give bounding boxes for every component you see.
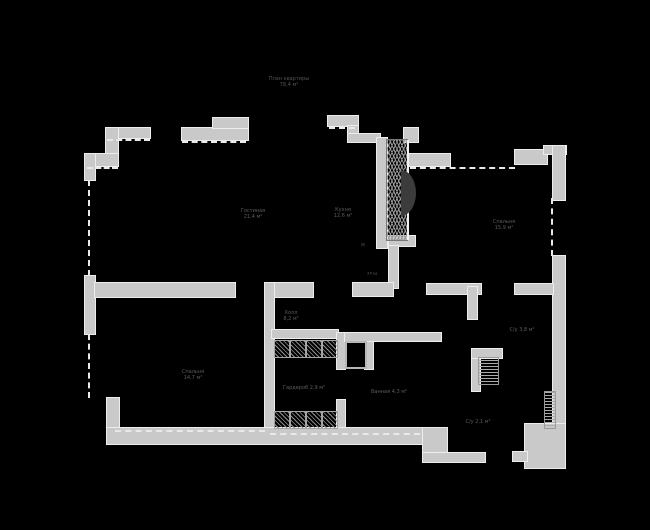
room-name: Ванная xyxy=(371,389,390,395)
room-label-storage: С/у 2,1 м² xyxy=(465,419,490,425)
room-label-bathroom: Ванная 4,3 м² xyxy=(371,389,407,395)
wall xyxy=(182,128,248,140)
room-label-bedroom-top: Спальня 15,9 м² xyxy=(493,219,515,232)
plan-title: План квартиры 78,4 м² xyxy=(269,76,309,89)
washing-machine xyxy=(479,358,498,384)
wall xyxy=(328,116,358,126)
shelf xyxy=(275,412,289,428)
wall xyxy=(468,287,477,319)
annotation-text: эл.щ xyxy=(367,271,377,276)
wall xyxy=(515,150,547,164)
duct-box xyxy=(345,341,367,369)
wall xyxy=(353,283,393,296)
wall xyxy=(513,452,527,461)
door-swing xyxy=(401,170,416,216)
shelf xyxy=(291,341,305,357)
room-name: Гардероб xyxy=(283,385,308,391)
room-name: С/у xyxy=(465,419,473,425)
room-label-hall: Холл 8,2 м² xyxy=(283,310,298,323)
window xyxy=(107,139,150,141)
room-name: С/у xyxy=(509,327,517,333)
room-label-living: Гостиная 21,4 м² xyxy=(241,208,265,221)
window xyxy=(115,430,265,432)
room-area: 3,8 м² xyxy=(519,327,534,333)
window xyxy=(87,167,118,169)
shaft-left-wall xyxy=(377,138,387,248)
shelf xyxy=(323,412,337,428)
room-area: 4,3 м² xyxy=(392,389,407,395)
annotation-text: М xyxy=(361,243,364,248)
wall xyxy=(95,283,235,297)
wall xyxy=(345,333,441,341)
window xyxy=(182,141,246,143)
window xyxy=(270,433,420,435)
wall xyxy=(265,283,274,439)
panel-annotation: эл.щ xyxy=(367,271,377,276)
wall xyxy=(213,118,248,128)
window xyxy=(329,127,355,129)
wall xyxy=(553,146,565,200)
shaft-annotation: М xyxy=(361,243,364,248)
shelf xyxy=(307,341,321,357)
shelf xyxy=(323,341,337,357)
room-area: 8,2 м² xyxy=(283,316,298,322)
wall xyxy=(423,453,485,462)
wall xyxy=(515,284,553,294)
floor-plan: План квартиры 78,4 м² Гостиная 21,4 м² К… xyxy=(0,0,650,530)
wall xyxy=(85,276,95,334)
wall xyxy=(337,333,345,369)
plan-title-line2: 78,4 м² xyxy=(269,82,309,88)
room-area: 15,9 м² xyxy=(493,225,515,231)
shelf xyxy=(275,341,289,357)
room-area: 21,4 м² xyxy=(241,214,265,220)
window xyxy=(410,167,515,169)
room-label-wardrobe: Гардероб 2,9 м² xyxy=(283,385,325,391)
room-area: 12,6 м² xyxy=(334,213,353,219)
window xyxy=(88,334,90,398)
shelf xyxy=(307,412,321,428)
window xyxy=(88,180,90,276)
wall xyxy=(525,424,565,468)
room-area: 2,1 м² xyxy=(475,419,490,425)
shelf xyxy=(291,412,305,428)
window xyxy=(551,198,553,256)
wall xyxy=(348,134,380,142)
room-label-kitchen: Кухня 12,6 м² xyxy=(334,207,353,220)
room-area: 2,9 м² xyxy=(310,385,325,391)
wall xyxy=(408,154,450,166)
radiator xyxy=(545,392,555,428)
room-label-bedroom-bottom: Спальня 14,7 м² xyxy=(182,369,204,382)
room-area: 14,7 м² xyxy=(182,375,204,381)
wall xyxy=(472,349,502,358)
wall xyxy=(389,246,398,288)
room-label-wc: С/у 3,8 м² xyxy=(509,327,534,333)
wall xyxy=(272,330,338,338)
